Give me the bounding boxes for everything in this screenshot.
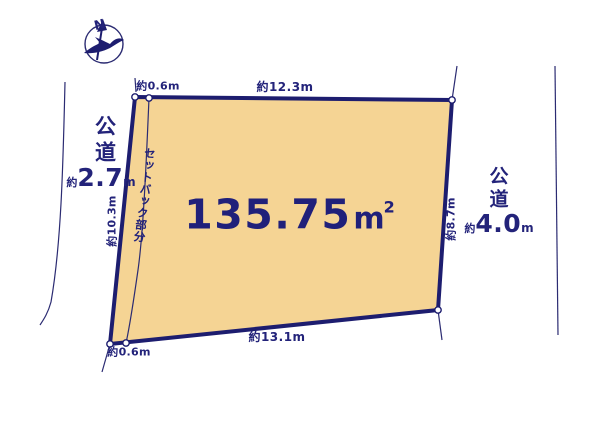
left-road-name: 公道: [94, 115, 115, 167]
left-road-width: 約2.7m: [66, 165, 135, 190]
right-road-width: 約4.0m: [464, 211, 533, 236]
corner-marker: [435, 307, 441, 313]
compass-icon: N: [84, 17, 124, 63]
plot-area-unit: m: [353, 205, 384, 235]
dimension-right-depth: 約8.7m: [446, 197, 457, 240]
plot-area-label: 135.75m2: [184, 195, 396, 236]
right-road-width-value: 4.0: [475, 211, 521, 236]
plot-area-exponent: 2: [384, 200, 395, 216]
right-road-edge-line: [555, 66, 558, 335]
corner-marker: [449, 97, 455, 103]
plot-area-value: 135.75: [184, 195, 351, 236]
dimension-bottom-width: 約13.1m: [248, 331, 305, 343]
corner-marker: [146, 95, 152, 101]
left-road-edge-line: [40, 82, 65, 325]
compass-bird-shape: [84, 37, 124, 53]
left-road-width-unit: m: [123, 176, 136, 188]
right-road-width-unit: m: [521, 222, 534, 234]
left-road-width-value: 2.7: [77, 165, 123, 190]
dimension-top-width: 約12.3m: [256, 81, 313, 93]
top-right-extension-line: [452, 66, 457, 100]
dimension-top-setback: 約0.6m: [136, 81, 179, 92]
dimension-left-depth: 約10.3m: [107, 195, 118, 246]
corner-marker: [132, 94, 138, 100]
compass-north-label: N: [93, 17, 107, 34]
right-road-width-prefix: 約: [464, 223, 475, 234]
right-road-name: 公道: [488, 166, 507, 212]
land-plot-diagram: N 約0.6m 約12.3m 約10.3m 約8.7m 約13.1m 約0.6m…: [0, 0, 600, 426]
left-road-width-prefix: 約: [66, 177, 77, 188]
bottom-right-extension-line: [438, 310, 442, 340]
dimension-bottom-setback: 約0.6m: [107, 347, 150, 358]
